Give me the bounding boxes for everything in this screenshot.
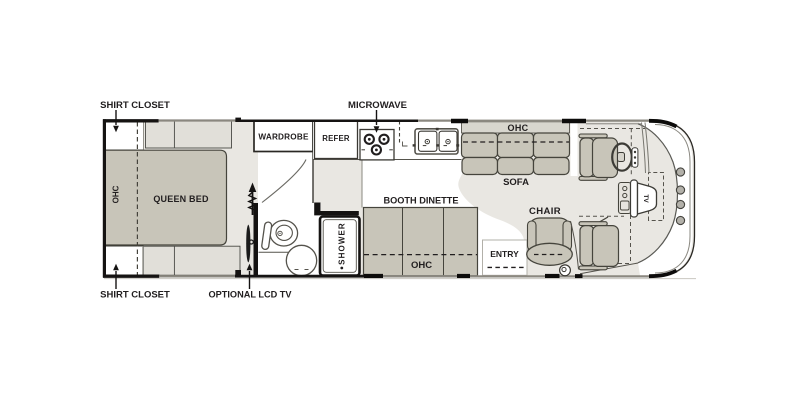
svg-text:QUEEN BED: QUEEN BED [153, 194, 209, 204]
svg-text:OHC: OHC [411, 260, 432, 271]
svg-text:SHIRT CLOSET: SHIRT CLOSET [100, 100, 170, 111]
svg-text:MICROWAVE: MICROWAVE [348, 100, 407, 111]
svg-text:OPTIONAL LCD TV: OPTIONAL LCD TV [208, 290, 292, 300]
svg-text:CHAIR: CHAIR [529, 206, 561, 217]
svg-text:BOOTH DINETTE: BOOTH DINETTE [383, 196, 458, 206]
svg-text:ENTRY: ENTRY [490, 249, 519, 259]
svg-text:TV: TV [642, 194, 649, 203]
svg-text:SHIRT CLOSET: SHIRT CLOSET [100, 290, 170, 301]
svg-text:REFER: REFER [322, 134, 350, 143]
svg-text:OHC: OHC [112, 185, 121, 203]
svg-text:WARDROBE: WARDROBE [258, 133, 309, 142]
svg-text:SHOWER: SHOWER [338, 222, 347, 265]
svg-text:OHC: OHC [508, 123, 529, 133]
svg-text:SOFA: SOFA [503, 177, 529, 188]
